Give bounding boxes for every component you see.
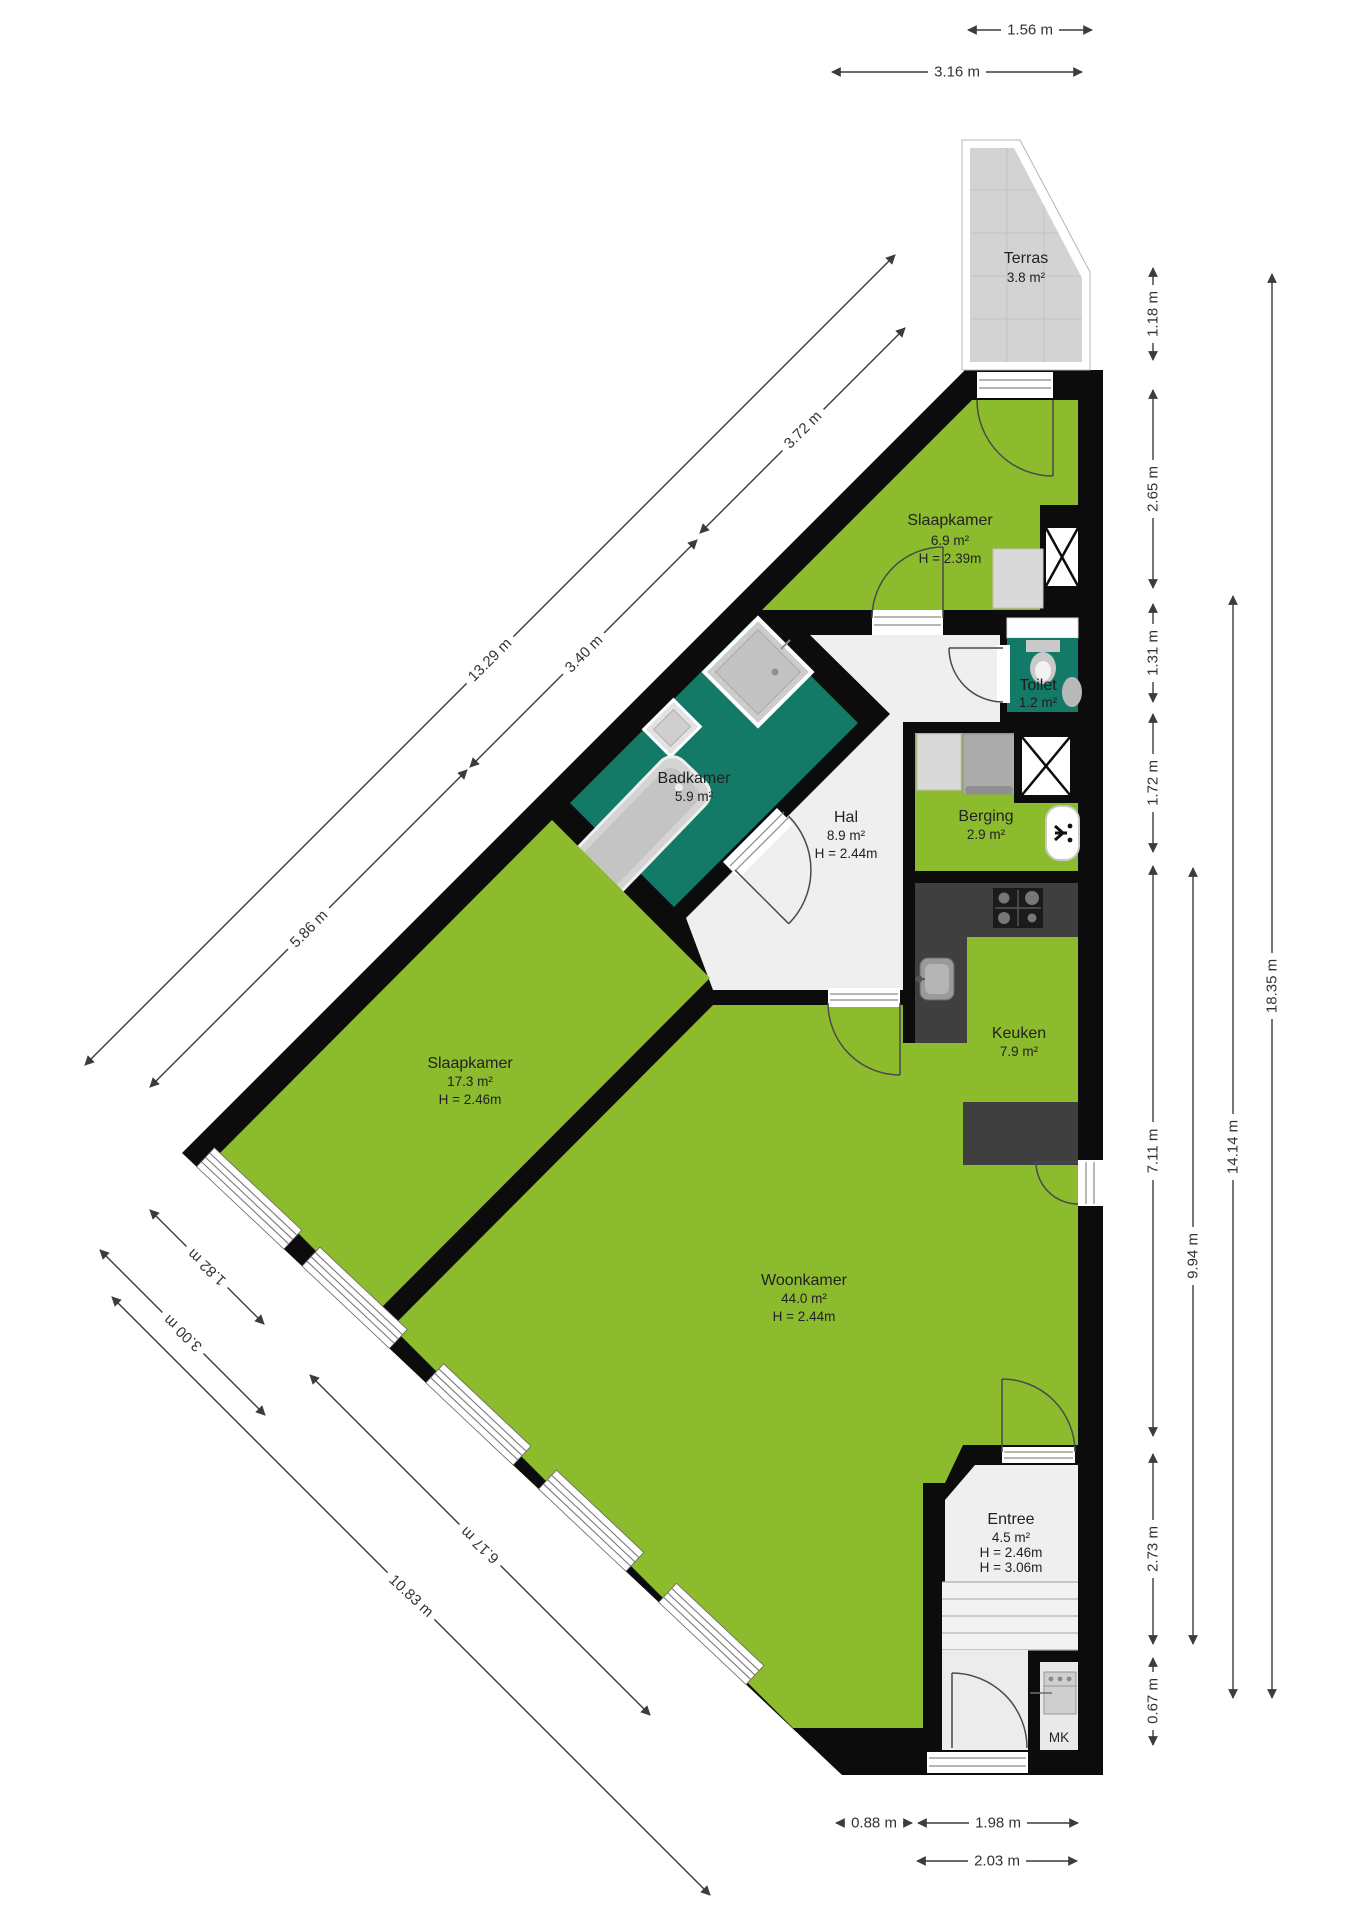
terrace-name: Terras <box>1004 250 1048 267</box>
floorplan-page: Terras 3.8 m² <box>0 0 1358 1920</box>
dim-label-diag-372: 3.72 m <box>776 403 829 456</box>
dim-label-right-2: 2.65 m <box>1145 460 1162 518</box>
bedroom-small-area: 6.9 m² <box>931 533 970 548</box>
toilet-basin <box>1062 677 1082 707</box>
terrace-area: 3.8 m² <box>1007 270 1046 285</box>
living-height: H = 2.44m <box>773 1309 836 1324</box>
toilet-area: 1.2 m² <box>1019 695 1058 710</box>
hall-name: Hal <box>834 809 858 826</box>
bathroom-area: 5.9 m² <box>675 789 714 804</box>
toilet-name: Toilet <box>1019 677 1057 694</box>
dim-label-diag-617: 6.17 m <box>453 1519 507 1571</box>
water-heater <box>1046 806 1079 860</box>
dim-label-right-total: 18.35 m <box>1264 953 1281 1019</box>
svg-text:1.56 m: 1.56 m <box>1007 22 1053 39</box>
kitchen-sink <box>915 958 954 1000</box>
svg-text:3.00 m: 3.00 m <box>160 1311 205 1355</box>
shaft-top <box>1046 528 1078 586</box>
shaft-storage <box>1014 729 1078 803</box>
svg-text:6.17 m: 6.17 m <box>457 1523 502 1567</box>
dryer-door <box>965 786 1013 794</box>
svg-text:1.72 m: 1.72 m <box>1145 760 1162 806</box>
entree-height-1: H = 2.46m <box>980 1545 1043 1560</box>
bathroom-name: Badkamer <box>658 770 732 787</box>
svg-text:14.14 m: 14.14 m <box>1225 1120 1242 1174</box>
dim-label-right-1: 1.18 m <box>1145 285 1162 343</box>
living-area: 44.0 m² <box>781 1291 827 1306</box>
svg-text:1.31 m: 1.31 m <box>1145 630 1162 676</box>
dim-label-top-1: 1.56 m <box>1001 21 1059 39</box>
dim-label-right-4: 1.72 m <box>1145 754 1162 812</box>
svg-text:3.40 m: 3.40 m <box>562 632 606 676</box>
hall-area: 8.9 m² <box>827 828 866 843</box>
svg-text:0.67 m: 0.67 m <box>1145 1678 1162 1724</box>
storage-area: 2.9 m² <box>967 827 1006 842</box>
svg-text:1.18 m: 1.18 m <box>1145 291 1162 337</box>
dim-label-right-7: 0.67 m <box>1145 1672 1162 1730</box>
bedroom-small-cabinet <box>993 549 1043 608</box>
svg-text:10.83 m: 10.83 m <box>385 1571 436 1620</box>
entree-area: 4.5 m² <box>992 1530 1031 1545</box>
entree-name: Entree <box>987 1511 1034 1528</box>
bedroom-small-height: H = 2.39m <box>919 551 982 566</box>
storage-name: Berging <box>958 808 1013 825</box>
svg-text:2.03 m: 2.03 m <box>974 1853 1020 1870</box>
dim-label-right-5: 7.11 m <box>1145 1122 1162 1180</box>
shower-drain <box>772 669 779 676</box>
dim-label-diag-1329: 13.29 m <box>461 631 520 690</box>
kitchen-area: 7.9 m² <box>1000 1044 1039 1059</box>
dryer <box>963 734 1015 794</box>
bedroom-small-name: Slaapkamer <box>907 512 993 529</box>
living-name: Woonkamer <box>761 1272 848 1289</box>
bedroom-large-name: Slaapkamer <box>427 1055 513 1072</box>
dim-label-bottom-3: 2.03 m <box>968 1852 1026 1870</box>
wall-kitchen-left <box>903 1005 915 1043</box>
dim-label-right-3: 1.31 m <box>1145 624 1162 682</box>
stove <box>993 888 1043 928</box>
dim-label-diag-182: 1.82 m <box>180 1241 234 1293</box>
dim-label-diag-340: 3.40 m <box>557 627 610 680</box>
svg-text:3.16 m: 3.16 m <box>934 64 980 81</box>
dim-label-right-outer: 14.14 m <box>1225 1114 1242 1180</box>
entree-lower-hall-floor <box>942 1650 1028 1750</box>
svg-text:3.72 m: 3.72 m <box>781 408 825 452</box>
dim-label-right-6: 2.73 m <box>1145 1520 1162 1578</box>
dim-label-diag-300: 3.00 m <box>156 1307 210 1359</box>
dim-label-diag-586: 5.86 m <box>282 902 335 955</box>
svg-text:1.98 m: 1.98 m <box>975 1815 1021 1832</box>
washing-machine <box>917 734 961 790</box>
entree-height-2: H = 3.06m <box>980 1560 1043 1575</box>
svg-text:13.29 m: 13.29 m <box>465 635 515 685</box>
dim-label-right-mid: 9.94 m <box>1185 1227 1202 1285</box>
svg-text:9.94 m: 9.94 m <box>1185 1233 1202 1279</box>
svg-text:7.11 m: 7.11 m <box>1145 1129 1162 1174</box>
toilet-ledge <box>1007 618 1078 638</box>
hall-height: H = 2.44m <box>815 846 878 861</box>
svg-text:18.35 m: 18.35 m <box>1264 959 1281 1013</box>
floorplan-canvas: Terras 3.8 m² <box>0 0 1358 1920</box>
bedroom-large-area: 17.3 m² <box>447 1074 493 1089</box>
svg-text:2.73 m: 2.73 m <box>1145 1526 1162 1572</box>
dim-label-diag-1083: 10.83 m <box>381 1567 441 1624</box>
kitchen-island <box>963 1102 1078 1165</box>
svg-text:2.65 m: 2.65 m <box>1145 466 1162 512</box>
kitchen-name: Keuken <box>992 1025 1046 1042</box>
svg-text:1.82 m: 1.82 m <box>184 1245 229 1289</box>
toilet-tank <box>1026 640 1060 652</box>
dim-label-bottom-1: 0.88 m <box>845 1814 903 1832</box>
terrace: Terras 3.8 m² <box>962 140 1090 370</box>
dim-label-top-2: 3.16 m <box>928 63 986 81</box>
dim-label-bottom-2: 1.98 m <box>969 1814 1027 1832</box>
bedroom-large-height: H = 2.46m <box>439 1092 502 1107</box>
svg-text:5.86 m: 5.86 m <box>287 907 331 951</box>
meter-closet-label: MK <box>1049 1730 1069 1745</box>
stairs <box>942 1582 1078 1650</box>
svg-text:0.88 m: 0.88 m <box>851 1815 897 1832</box>
